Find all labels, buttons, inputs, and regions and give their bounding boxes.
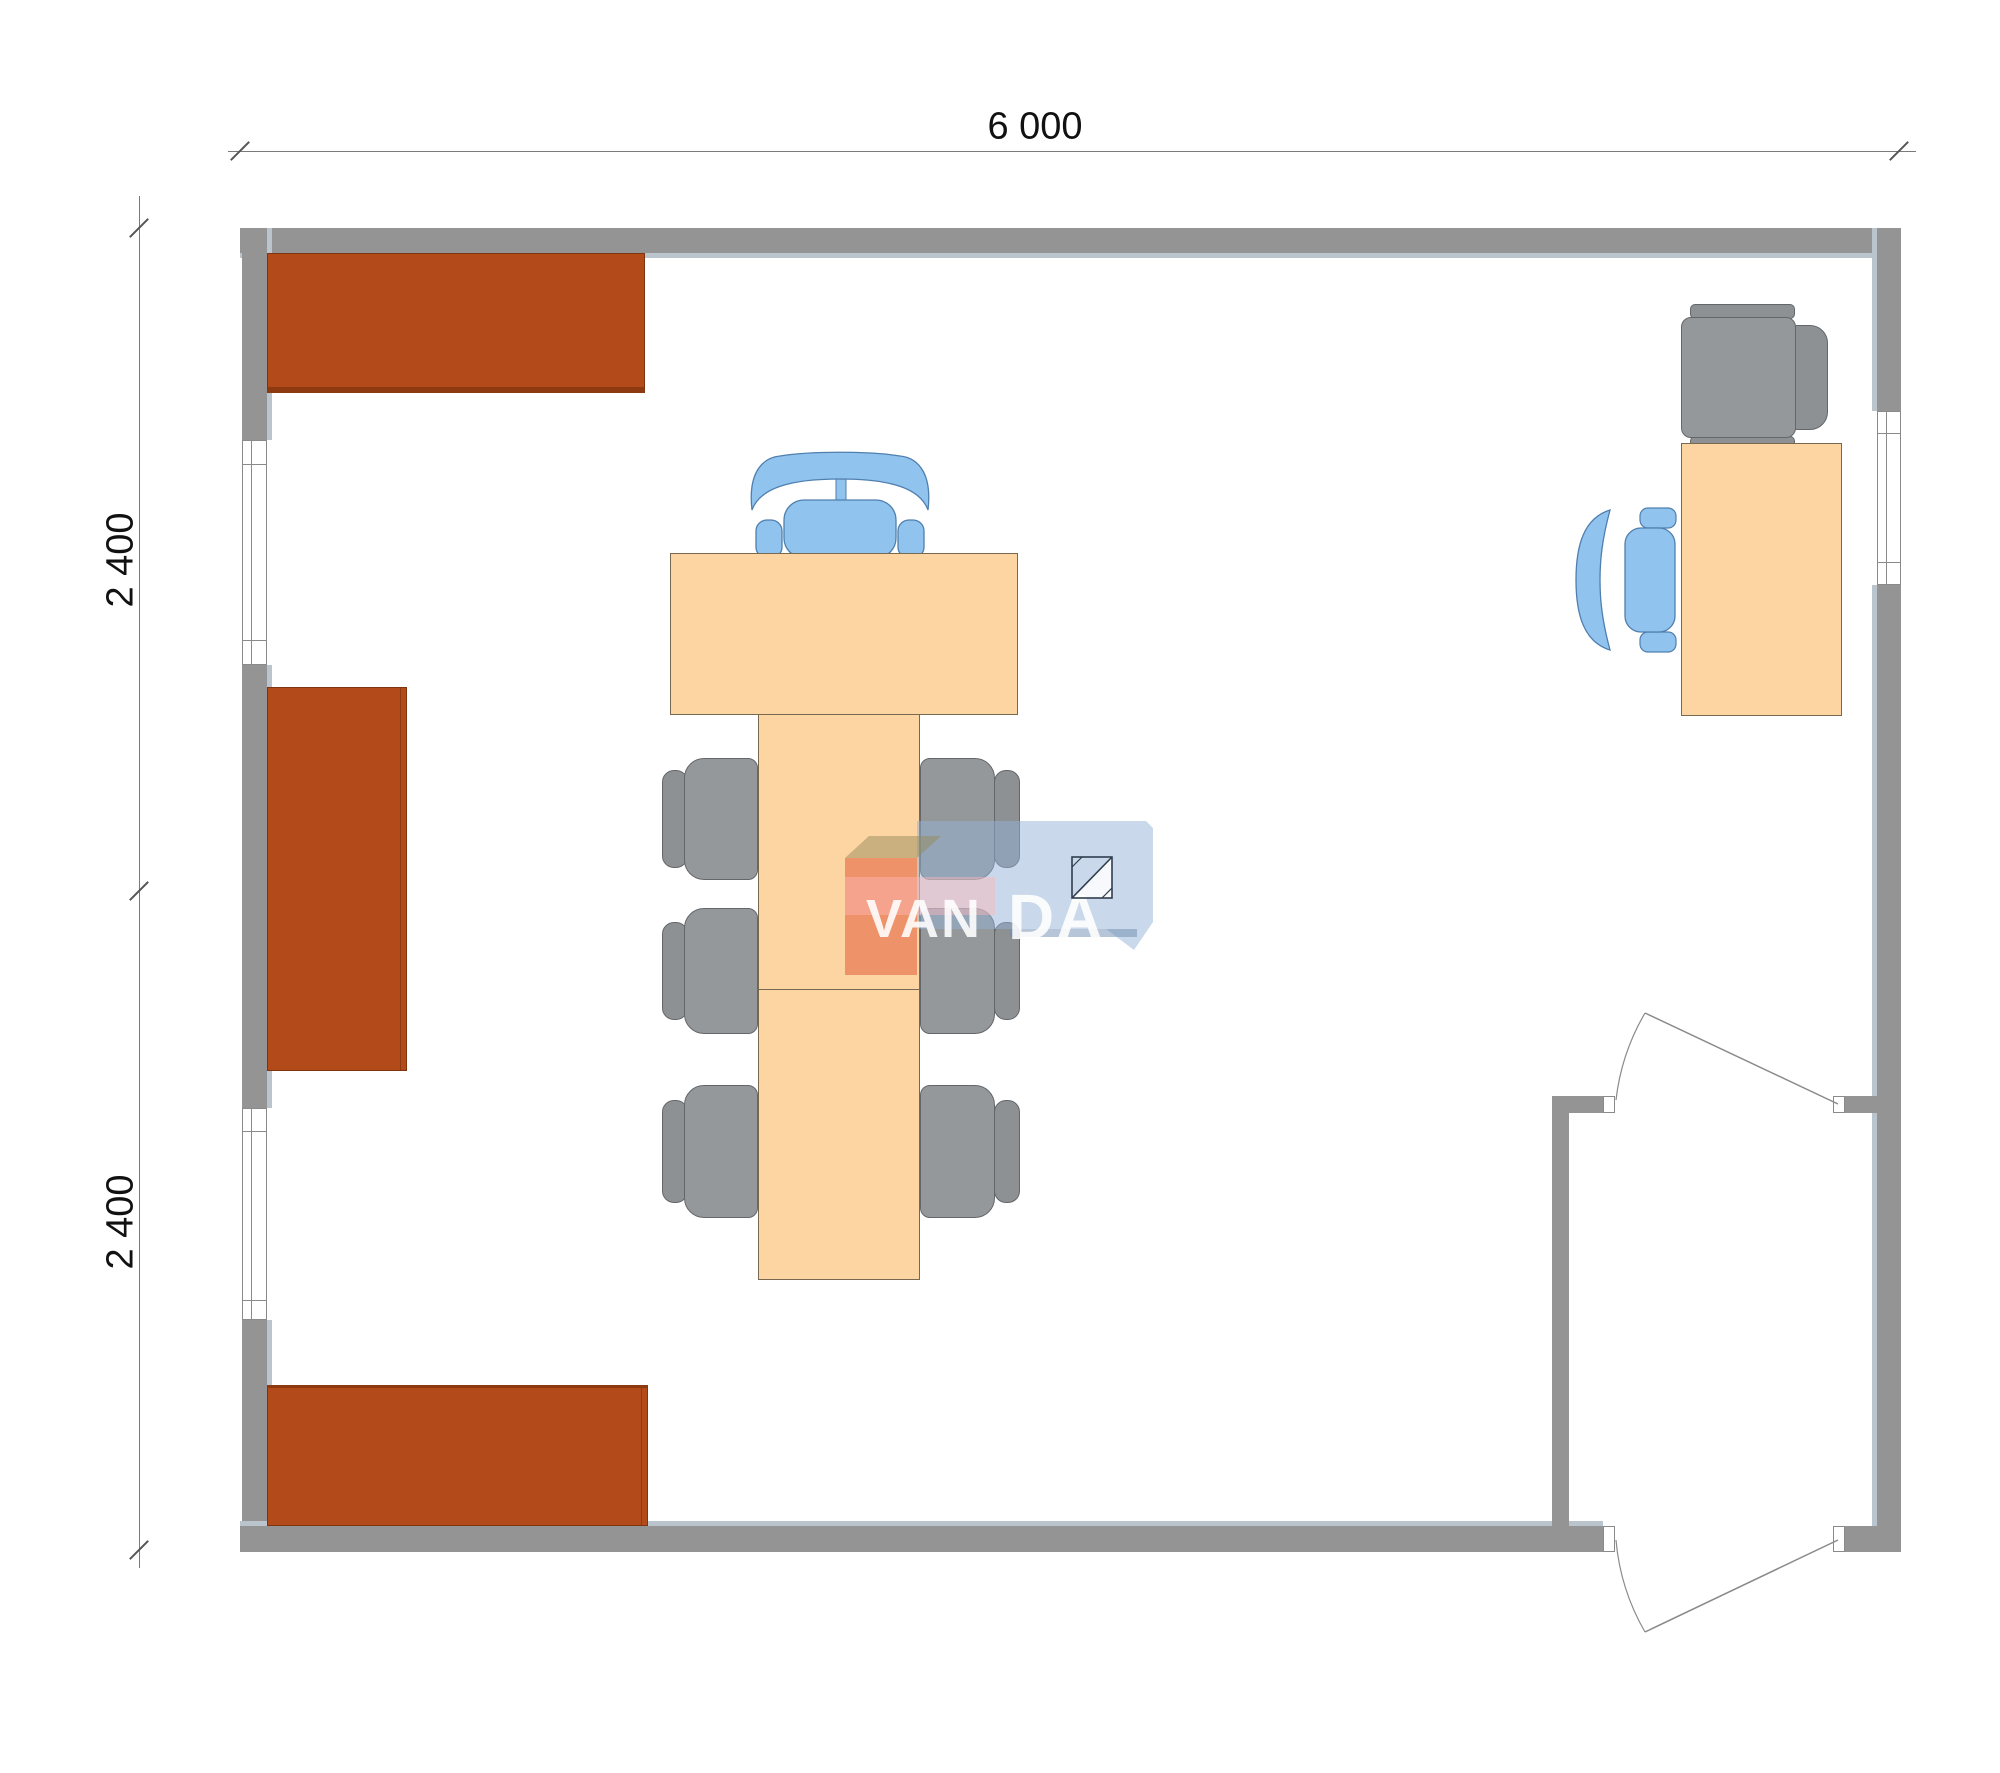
door-swing-drawings: [1540, 940, 1920, 1700]
door-leaf-entry: [1645, 1540, 1838, 1632]
dimension-label-height-upper: 2 400: [100, 512, 143, 607]
chair-armrest-bottom: [1640, 632, 1676, 652]
cabinet-panel-line: [641, 1388, 642, 1525]
desk: [1681, 443, 1842, 716]
logo-text-van: VAN: [866, 889, 982, 949]
conference-chair-seat: [684, 1085, 758, 1218]
conference-chair-backrest: [994, 1100, 1020, 1203]
window-frame-line: [243, 1131, 266, 1132]
window-glass-line: [251, 441, 252, 664]
chair-backrest: [1576, 510, 1610, 650]
door-arc-inner: [1616, 1013, 1645, 1100]
window-glass-line: [251, 1109, 252, 1319]
window-left-upper: [242, 440, 267, 665]
conference-chair-seat: [684, 908, 758, 1034]
cabinet-bottom-left: [267, 1385, 648, 1526]
window-glass-line: [1886, 412, 1887, 584]
cabinet-left-middle: [267, 687, 407, 1071]
window-frame-line: [243, 464, 266, 465]
chair-seat: [1625, 528, 1675, 632]
conference-chair-seat: [920, 1085, 995, 1218]
chair-armrest-top: [1640, 508, 1676, 528]
window-right: [1877, 411, 1901, 585]
door-leaf-inner: [1645, 1013, 1838, 1104]
table-seam-line: [759, 989, 919, 990]
dimension-label-width: 6 000: [987, 106, 1082, 149]
chair-backrest-cushion: [784, 500, 896, 558]
cabinet-panel-line: [400, 688, 401, 1070]
conference-chair-seat: [684, 758, 758, 880]
vanda-watermark-logo: VAN DA: [840, 810, 1170, 985]
cabinet-top-left: [267, 253, 645, 393]
dimension-label-height-lower: 2 400: [100, 1174, 143, 1269]
wall-right-upper: [1872, 228, 1901, 411]
conference-table-head: [670, 553, 1018, 715]
dimension-line-left: [139, 196, 140, 1568]
window-frame-line: [1878, 562, 1900, 563]
dimension-line-top: [228, 151, 1916, 152]
window-frame-line: [1878, 433, 1900, 434]
executive-chair-blue: [740, 448, 940, 560]
visitor-chair-seat: [1681, 317, 1796, 438]
window-left-lower: [242, 1108, 267, 1320]
door-arc-entry: [1616, 1540, 1645, 1632]
conference-table-stem: [758, 714, 920, 1280]
window-frame-line: [243, 640, 266, 641]
window-frame-line: [243, 1300, 266, 1301]
floor-plan-canvas: 6 000 2 400 2 400: [0, 0, 2000, 1773]
desk-chair-blue: [1570, 500, 1685, 660]
